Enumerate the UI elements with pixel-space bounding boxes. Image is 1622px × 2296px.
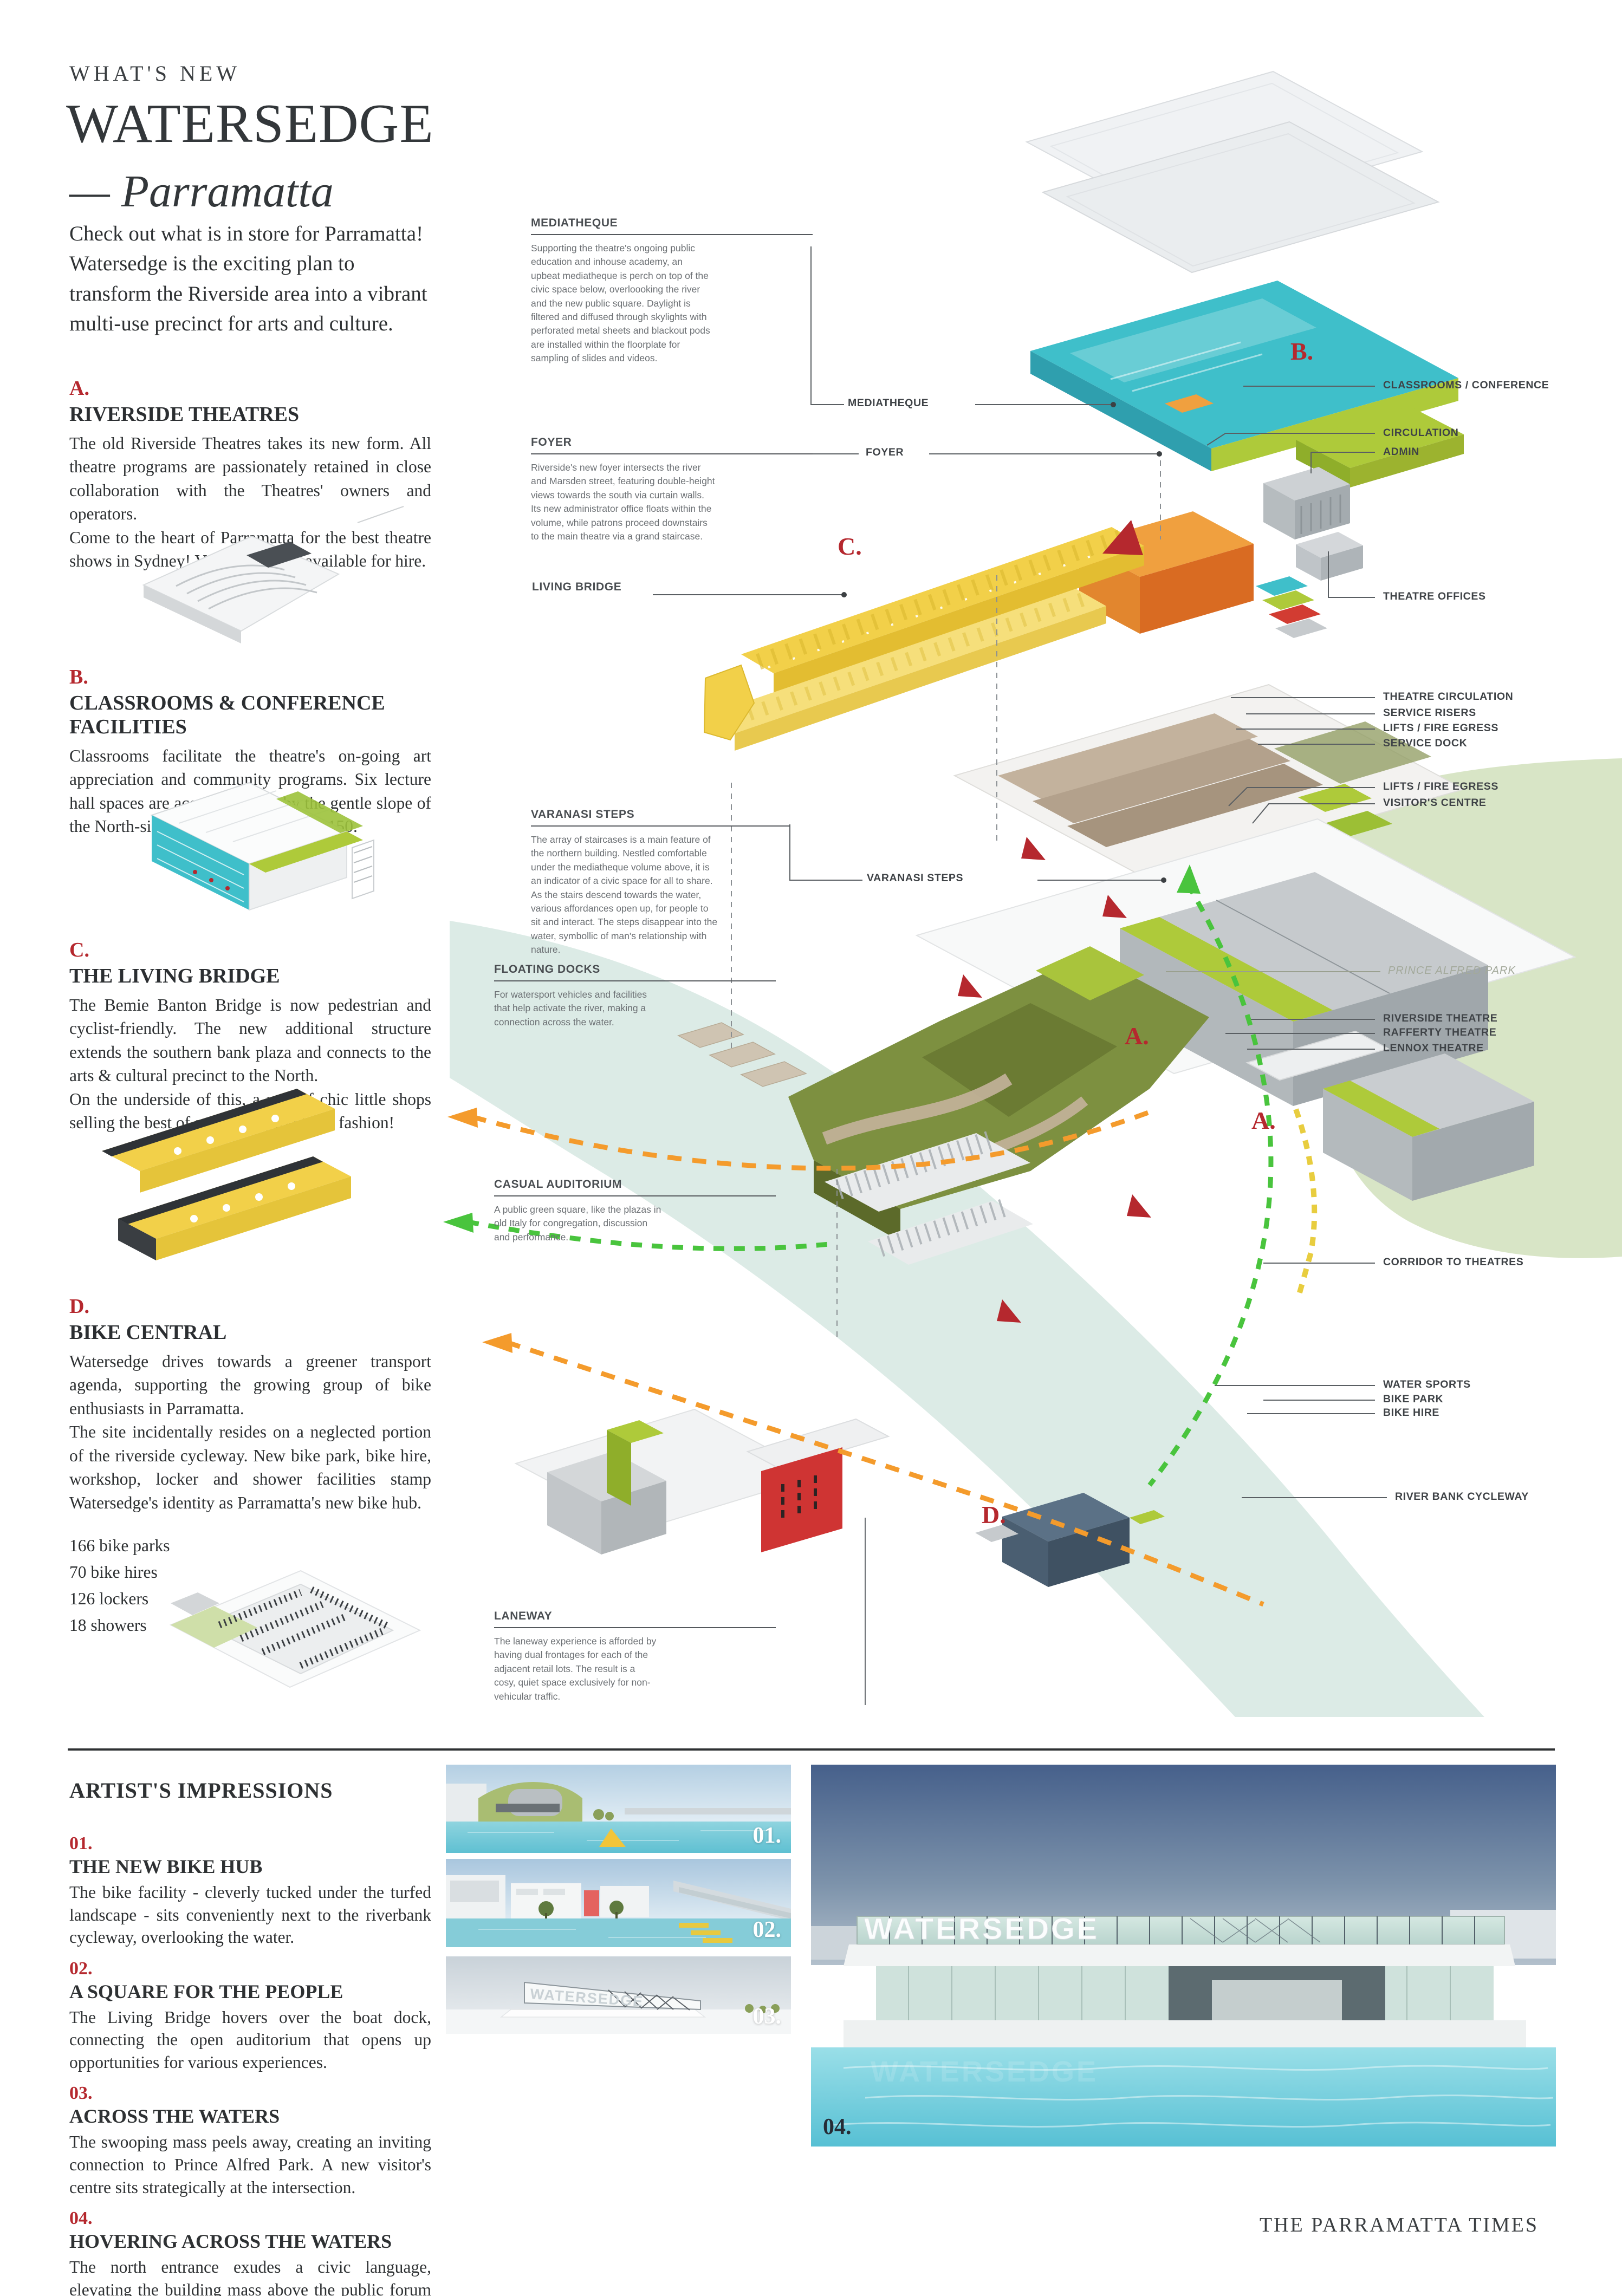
cycleway-arrowhead-2 <box>482 1333 512 1353</box>
annotation-title: MEDIATHEQUE <box>531 217 813 230</box>
render-square-image <box>446 1859 791 1947</box>
cycleway-arrowhead <box>447 1108 478 1128</box>
render-sign-image: WATERSEDGE <box>446 1956 791 2034</box>
annotation-body: The laneway experience is afforded by ha… <box>494 1635 657 1703</box>
impression-number: 01. <box>69 1833 431 1854</box>
label-visitors-centre: VISITOR'S CENTRE <box>1383 797 1487 809</box>
label-service-risers: SERVICE RISERS <box>1383 707 1476 719</box>
render-label-02: 02. <box>753 1917 782 1943</box>
label-rafferty-theatre: RAFFERTY THEATRE <box>1383 1026 1496 1039</box>
marker-a-2: A. <box>1251 1106 1276 1135</box>
annotation-body: A public green square, like the plazas i… <box>494 1203 665 1244</box>
center-label-varanasi-steps: VARANASI STEPS <box>867 872 963 884</box>
center-label-mediatheque: MEDIATHEQUE <box>848 397 929 409</box>
annotation-body: For watersport vehicles and facilities t… <box>494 988 662 1029</box>
annotation-foyer: FOYER Riverside's new foyer intersects t… <box>531 436 813 543</box>
impression-item: 04. HOVERING ACROSS THE WATERS The north… <box>69 2208 431 2296</box>
impression-body: The swooping mass peels away, creating a… <box>69 2131 431 2199</box>
annotation-body: Riverside's new foyer intersects the riv… <box>531 461 715 543</box>
dashed-drop-lines <box>731 460 1160 1339</box>
admin-circulation-volume <box>1296 406 1464 487</box>
marker-a: A. <box>1125 1022 1149 1050</box>
label-riverside-theatre: RIVERSIDE THEATRE <box>1383 1012 1497 1025</box>
theatre-volumes <box>917 819 1575 1201</box>
impression-title: A SQUARE FOR THE PEOPLE <box>69 1980 431 2003</box>
impression-body: The north entrance exudes a civic langua… <box>69 2256 431 2296</box>
label-admin: ADMIN <box>1383 446 1419 458</box>
annotation-laneway: LANEWAY The laneway experience is afford… <box>494 1610 776 1703</box>
auditorium-stairs <box>825 1133 1033 1265</box>
impression-item: 02. A SQUARE FOR THE PEOPLE The Living B… <box>69 1959 431 2074</box>
floating-docks-shapes <box>678 1023 806 1087</box>
label-lennox-theatre: LENNOX THEATRE <box>1383 1042 1484 1055</box>
green-landscape <box>788 946 1209 1241</box>
impression-item: 03. ACROSS THE WATERS The swooping mass … <box>69 2083 431 2199</box>
center-label-foyer: FOYER <box>866 446 904 459</box>
section-heading-c: THE LIVING BRIDGE <box>69 964 431 988</box>
annotation-title: FOYER <box>531 436 813 449</box>
impression-title: THE NEW BIKE HUB <box>69 1855 431 1878</box>
label-bike-hire: BIKE HIRE <box>1383 1407 1439 1419</box>
annotation-varanasi-steps: VARANASI STEPS The array of staircases i… <box>531 808 790 957</box>
annotation-mediatheque: MEDIATHEQUE Supporting the theatre's ong… <box>531 217 813 365</box>
watersedge-sign-text: WATERSEDGE <box>864 1911 1099 1946</box>
sketch-riverside-theatres <box>111 504 414 661</box>
bottom-divider-rule <box>68 1748 1555 1751</box>
marker-d: D. <box>982 1500 1006 1529</box>
label-theatre-offices: THEATRE OFFICES <box>1383 590 1486 603</box>
label-river-bank-cycleway: RIVER BANK CYCLEWAY <box>1395 1491 1529 1503</box>
masthead-footer: THE PARRAMATTA TIMES <box>1138 2213 1539 2237</box>
annotation-title: LANEWAY <box>494 1610 776 1623</box>
impression-number: 03. <box>69 2083 431 2104</box>
label-service-dock: SERVICE DOCK <box>1383 737 1467 750</box>
section-heading-a: RIVERSIDE THEATRES <box>69 402 431 426</box>
marker-c: C. <box>838 532 862 561</box>
impression-title: HOVERING ACROSS THE WATERS <box>69 2230 431 2253</box>
annotation-casual-auditorium: CASUAL AUDITORIUM A public green square,… <box>494 1178 776 1244</box>
impressions-heading: ARTIST'S IMPRESSIONS <box>69 1778 431 1803</box>
kicker: WHAT'S NEW <box>69 61 241 86</box>
intro-paragraph: Check out what is in store for Parramatt… <box>69 219 431 339</box>
sketch-bike-hub <box>138 1538 442 1717</box>
impression-number: 04. <box>69 2208 431 2229</box>
artists-impressions: ARTIST'S IMPRESSIONS 01. THE NEW BIKE HU… <box>69 1778 431 2296</box>
render-bike-hub: 01. <box>446 1765 791 1853</box>
sketch-living-bridge <box>80 1070 384 1281</box>
label-classrooms-conference: CLASSROOMS / CONFERENCE <box>1383 379 1549 392</box>
page-subtitle: — Parramatta <box>69 169 334 214</box>
leader-dots <box>841 402 1166 883</box>
label-living-bridge: LIVING BRIDGE <box>532 581 621 594</box>
impression-body: The bike facility - cleverly tucked unde… <box>69 1881 431 1949</box>
label-lifts-fire-egress-2: LIFTS / FIRE EGRESS <box>1383 780 1498 793</box>
render-label-04: 04. <box>823 2114 852 2140</box>
circulation-slivers <box>1256 576 1327 638</box>
annotation-body: Supporting the theatre's ongoing public … <box>531 242 712 365</box>
label-bike-park: BIKE PARK <box>1383 1393 1443 1406</box>
pedestrian-arrowhead-2 <box>1177 864 1201 894</box>
section-body-d: Watersedge drives towards a greener tran… <box>69 1350 431 1514</box>
label-water-sports: WATER SPORTS <box>1383 1378 1471 1391</box>
living-bridge-volume <box>704 527 1144 751</box>
annotation-floating-docks: FLOATING DOCKS For watersport vehicles a… <box>494 963 776 1029</box>
theatre-offices-volume <box>1263 467 1363 581</box>
label-corridor-to-theatres: CORRIDOR TO THEATRES <box>1383 1256 1523 1269</box>
render-square: 02. <box>446 1859 791 1947</box>
section-letter-a: A. <box>69 376 431 400</box>
annotation-title: CASUAL AUDITORIUM <box>494 1178 776 1191</box>
render-bike-hub-image <box>446 1765 791 1853</box>
section-heading-d: BIKE CENTRAL <box>69 1321 431 1344</box>
sketch-classrooms <box>114 766 385 929</box>
label-lifts-fire-egress: LIFTS / FIRE EGRESS <box>1383 722 1498 734</box>
red-arrow-markers <box>958 520 1151 1323</box>
impression-item: 01. THE NEW BIKE HUB The bike facility -… <box>69 1833 431 1949</box>
roof-slabs <box>1027 71 1438 272</box>
render-sign: WATERSEDGE 03. <box>446 1956 791 2034</box>
render-north-entrance: WATERSEDGE WATERSEDGE 04. <box>811 1765 1556 2147</box>
render-label-03: 03. <box>753 2004 782 2030</box>
label-prince-alfred-park: PRINCE ALFRED PARK <box>1388 965 1516 977</box>
annotation-body: The array of staircases is a main featur… <box>531 833 718 957</box>
mediatheque-volume <box>1030 281 1458 471</box>
impression-number: 02. <box>69 1959 431 1979</box>
render-label-01: 01. <box>753 1823 782 1849</box>
section-letter-c: C. <box>69 938 431 962</box>
laneway-volumes <box>516 1409 888 1554</box>
park-shape <box>1314 758 1622 1258</box>
page-title: WATERSEDGE <box>66 96 434 152</box>
poster: WHAT'S NEW WATERSEDGE — Parramatta Check… <box>0 0 1622 2296</box>
pedestrian-arrowhead <box>443 1213 473 1233</box>
watersedge-reflection-text: WATERSEDGE <box>871 2056 1098 2088</box>
section-heading-b: CLASSROOMS & CONFERENCE FACILITIES <box>69 691 431 739</box>
river-shape <box>450 921 1484 1717</box>
label-theatre-circulation: THEATRE CIRCULATION <box>1383 691 1513 703</box>
section-letter-b: B. <box>69 665 431 689</box>
label-circulation: CIRCULATION <box>1383 427 1458 439</box>
annotation-title: FLOATING DOCKS <box>494 963 776 976</box>
foyer-volume <box>1079 511 1254 634</box>
marker-b: B. <box>1290 337 1313 366</box>
impression-body: The Living Bridge hovers over the boat d… <box>69 2006 431 2074</box>
steps-dashed-path <box>1296 1109 1314 1295</box>
impression-title: ACROSS THE WATERS <box>69 2105 431 2128</box>
annotation-title: VARANASI STEPS <box>531 808 790 821</box>
section-letter-d: D. <box>69 1295 431 1318</box>
render-north-entrance-image: WATERSEDGE WATERSEDGE <box>811 1765 1556 2147</box>
